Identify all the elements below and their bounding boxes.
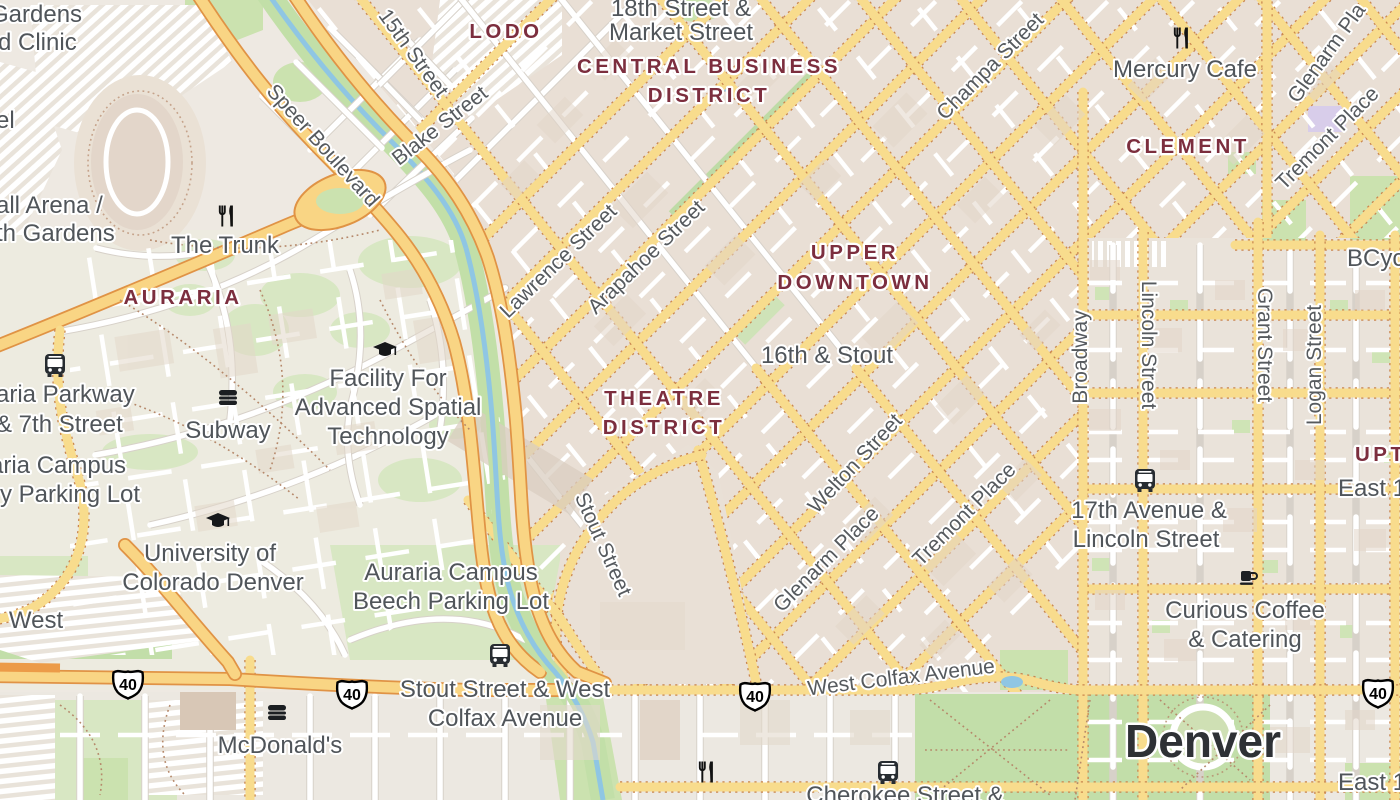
svg-text:raria Parkway: raria Parkway — [0, 381, 135, 408]
svg-text:CENTRAL BUSINESS: CENTRAL BUSINESS — [577, 55, 841, 78]
svg-text:THEATRE: THEATRE — [604, 387, 724, 410]
svg-text:DOWNTOWN: DOWNTOWN — [777, 271, 932, 294]
svg-text:Colorado Denver: Colorado Denver — [122, 569, 303, 596]
svg-text:West: West — [9, 607, 64, 634]
svg-text:Cherokee Street &: Cherokee Street & — [806, 782, 1003, 800]
svg-text:Gardens: Gardens — [0, 1, 82, 28]
svg-text:Grant Street: Grant Street — [1253, 288, 1276, 403]
svg-text:ry Parking Lot: ry Parking Lot — [0, 481, 140, 508]
svg-text:th Gardens: th Gardens — [0, 220, 115, 247]
svg-text:el: el — [0, 107, 15, 134]
svg-text:Denver: Denver — [1125, 715, 1281, 767]
svg-text:UPPER: UPPER — [811, 241, 899, 264]
svg-text:Curious Coffee: Curious Coffee — [1165, 597, 1325, 624]
svg-text:UPT: UPT — [1355, 443, 1400, 466]
svg-text:& Catering: & Catering — [1188, 626, 1301, 653]
svg-text:Technology: Technology — [327, 423, 448, 450]
svg-text:East 14t: East 14t — [1338, 769, 1400, 796]
svg-text:Lincoln Street: Lincoln Street — [1137, 281, 1160, 410]
svg-text:Facility For: Facility For — [329, 365, 446, 392]
svg-text:Stout Street & West: Stout Street & West — [400, 676, 611, 703]
svg-text:The Trunk: The Trunk — [171, 232, 280, 259]
svg-text:17th Avenue &: 17th Avenue & — [1071, 497, 1227, 524]
svg-text:aria Campus: aria Campus — [0, 452, 126, 479]
svg-text:East 11t: East 11t — [1338, 475, 1400, 502]
svg-text:CLEMENT: CLEMENT — [1126, 135, 1250, 158]
svg-text:Market Street: Market Street — [609, 19, 753, 46]
svg-text:BCycle: BCycle — [1347, 245, 1400, 272]
svg-text:Broadway: Broadway — [1069, 310, 1092, 404]
svg-text:Logan Street: Logan Street — [1303, 305, 1326, 425]
svg-text:Beech Parking Lot: Beech Parking Lot — [353, 588, 549, 615]
svg-text:Mercury Cafe: Mercury Cafe — [1113, 56, 1257, 83]
svg-text:Lincoln Street: Lincoln Street — [1073, 526, 1220, 553]
svg-text:Auraria Campus: Auraria Campus — [364, 559, 537, 586]
svg-text:Subway: Subway — [185, 417, 270, 444]
svg-text:Advanced Spatial: Advanced Spatial — [295, 394, 482, 421]
svg-text:Colfax Avenue: Colfax Avenue — [428, 705, 582, 732]
svg-text:University of: University of — [144, 540, 276, 567]
svg-text:DISTRICT: DISTRICT — [603, 416, 726, 439]
svg-text:AURARIA: AURARIA — [123, 286, 242, 309]
svg-text:all Arena /: all Arena / — [0, 192, 103, 219]
svg-text:d Clinic: d Clinic — [0, 29, 77, 56]
svg-text:DISTRICT: DISTRICT — [648, 84, 771, 107]
svg-text:McDonald's: McDonald's — [218, 732, 343, 759]
svg-text:LODO: LODO — [469, 20, 542, 43]
svg-text:& 7th Street: & 7th Street — [0, 411, 123, 438]
svg-text:16th & Stout: 16th & Stout — [761, 342, 893, 369]
